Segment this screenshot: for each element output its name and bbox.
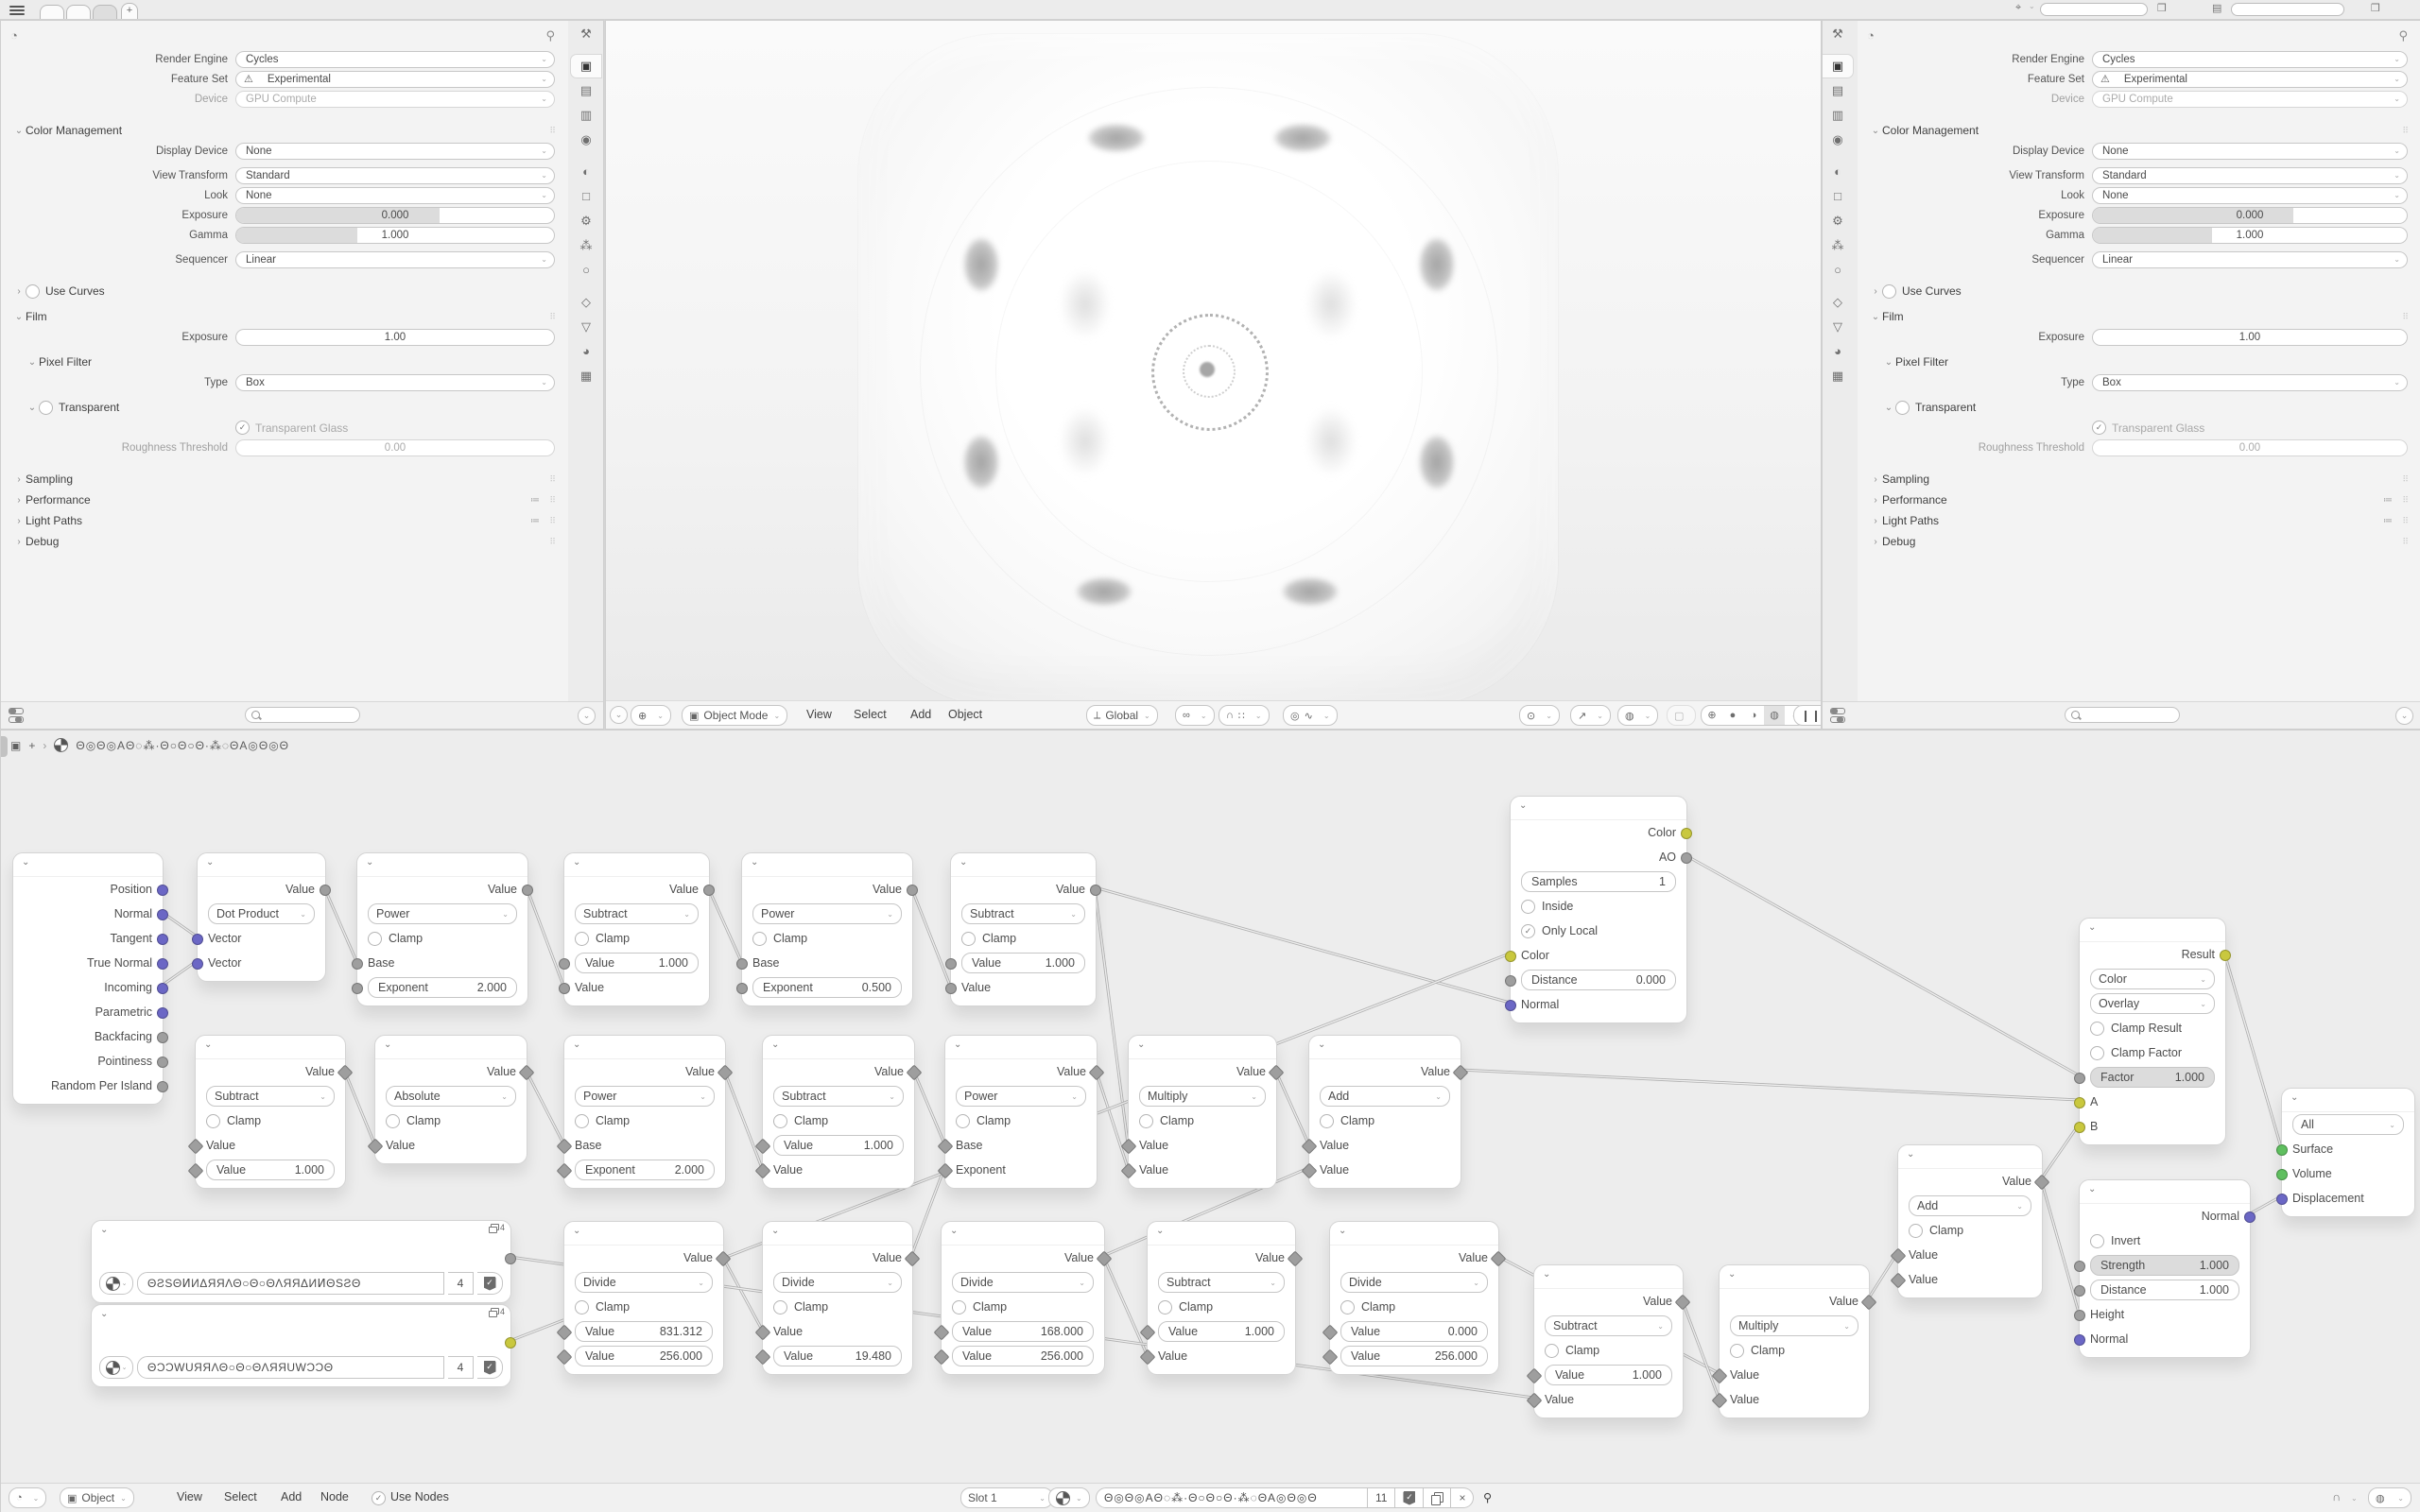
menu-add[interactable]: Add — [281, 1490, 302, 1503]
fake-user-button[interactable]: ✓ — [477, 1272, 503, 1295]
node-header[interactable]: ⌄ — [1898, 1145, 2042, 1169]
node-n8[interactable]: ⌄ResultColor⌄Overlay⌄Clamp ResultClamp F… — [2079, 918, 2226, 1145]
dropdown-display-device[interactable]: None⌄ — [235, 143, 555, 160]
output-socket[interactable] — [1090, 885, 1101, 896]
section-color-management[interactable]: ⌄Color Management⠿ — [1, 120, 564, 141]
shader-type-dropdown[interactable]: ▣ Object⌄ — [60, 1487, 134, 1508]
pin-icon[interactable]: ⚲ — [2398, 28, 2408, 43]
input-socket[interactable] — [945, 983, 957, 994]
node-n21[interactable]: ⌄ValueDivide⌄ClampValue168.000Value256.0… — [941, 1221, 1105, 1375]
input-socket[interactable] — [736, 983, 748, 994]
checkbox-row[interactable]: Clamp — [575, 1300, 630, 1314]
tab-render[interactable]: ▣ — [1823, 55, 1853, 77]
input-socket[interactable] — [945, 958, 957, 970]
view-layer-icon[interactable]: ▤ — [2212, 2, 2221, 14]
image-users-count[interactable]: 4 — [448, 1356, 474, 1379]
output-socket[interactable] — [157, 1057, 168, 1068]
input-socket[interactable] — [2074, 1310, 2085, 1321]
tab-object[interactable]: □ — [571, 185, 601, 208]
section-debug[interactable]: ›Debug⠿ — [1858, 531, 2417, 552]
use-nodes-checkbox[interactable]: ✓ — [372, 1491, 386, 1505]
options-chevron-button[interactable]: ⌄ — [578, 707, 596, 725]
dropdown-device[interactable]: GPU Compute⌄ — [2092, 91, 2408, 108]
output-socket[interactable] — [2220, 950, 2231, 961]
tab-scene[interactable]: ◉ — [1823, 129, 1853, 151]
value-field[interactable]: Value1.000 — [575, 953, 699, 973]
collapse-chevron-icon[interactable]: ⌄ — [2088, 922, 2096, 933]
checkbox[interactable] — [575, 1300, 589, 1314]
value-field[interactable]: Value256.000 — [952, 1346, 1094, 1366]
node-n7[interactable]: ⌄ColorAOSamples1Inside✓Only LocalColorDi… — [1510, 796, 1687, 1023]
checkbox-row[interactable]: Clamp — [773, 1300, 828, 1314]
menu-select[interactable]: Select — [224, 1490, 257, 1503]
collapse-chevron-icon[interactable]: ⌄ — [771, 1226, 779, 1236]
menu-object[interactable]: Object — [948, 708, 982, 721]
operation-dropdown[interactable]: All⌄ — [2292, 1114, 2404, 1135]
workspace-tab[interactable] — [66, 5, 91, 20]
node-header[interactable]: ⌄ — [1309, 1036, 1461, 1059]
output-socket[interactable] — [320, 885, 331, 896]
section-color-management[interactable]: ⌄Color Management⠿ — [1858, 120, 2417, 141]
value-field[interactable]: Distance0.000 — [1521, 970, 1676, 990]
checkbox[interactable] — [773, 1300, 787, 1314]
checkbox-row[interactable]: Clamp — [952, 1300, 1007, 1314]
browse-material-button[interactable]: ⌄ — [1048, 1487, 1090, 1508]
node-n23[interactable]: ⌄ValueDivide⌄ClampValue0.000Value256.000 — [1329, 1221, 1499, 1375]
section-transparent[interactable]: ⌄Transparent — [1, 397, 564, 418]
value-field[interactable]: Value1.000 — [1545, 1365, 1672, 1385]
checkbox[interactable] — [1882, 284, 1896, 299]
chevron-down-icon[interactable]: ⌄ — [2351, 1494, 2358, 1503]
value-field-gamma[interactable]: 1.000 — [235, 227, 555, 244]
checkbox[interactable] — [575, 1114, 589, 1128]
input-socket[interactable] — [2074, 1261, 2085, 1272]
browse-image-button[interactable]: ⌄ — [99, 1356, 133, 1379]
input-socket[interactable] — [559, 983, 570, 994]
node-n10[interactable]: ⌄ValueSubtract⌄ClampValueValue1.000 — [195, 1035, 346, 1189]
tab-scene[interactable]: ◉ — [571, 129, 601, 151]
browse-image-button[interactable]: ⌄ — [99, 1272, 133, 1295]
node-header[interactable]: ⌄ — [951, 853, 1096, 877]
value-field[interactable]: Strength1.000 — [2090, 1255, 2239, 1276]
node-header[interactable]: ⌄ — [2080, 1180, 2250, 1204]
shading-wireframe-icon[interactable]: ⊕ — [1702, 706, 1722, 725]
shading-rendered-icon[interactable]: ◍ — [1764, 706, 1785, 725]
menu-node[interactable]: Node — [320, 1490, 349, 1503]
node-header[interactable]: ⌄ — [375, 1036, 527, 1059]
operation-dropdown[interactable]: Power⌄ — [575, 1086, 715, 1107]
node-n3[interactable]: ⌄ValuePower⌄ClampBaseExponent2.000 — [356, 852, 528, 1006]
node-n25[interactable]: ⌄ValueMultiply⌄ClampValueValue — [1719, 1264, 1870, 1418]
operation-dropdown[interactable]: Subtract⌄ — [575, 903, 699, 924]
collapse-chevron-icon[interactable]: ⌄ — [959, 857, 967, 868]
operation-dropdown[interactable]: Subtract⌄ — [1545, 1315, 1672, 1336]
new-material-button[interactable] — [1424, 1487, 1451, 1508]
node-n14[interactable]: ⌄ValuePower⌄ClampBaseExponent — [944, 1035, 1098, 1189]
checkbox[interactable]: ✓ — [235, 421, 250, 435]
value-field[interactable]: Exponent2.000 — [368, 977, 517, 998]
value-field[interactable]: Samples1 — [1521, 871, 1676, 892]
dropdown-render-engine[interactable]: Cycles⌄ — [235, 51, 555, 68]
input-socket[interactable] — [2074, 1285, 2085, 1297]
tab-tool[interactable]: ⚒ — [1823, 23, 1853, 45]
output-socket[interactable] — [2244, 1211, 2256, 1223]
node-n18[interactable]: ⌄4⌄ΘƆƆWUЯЯΛΘ○Θ○ΘΛЯЯUWƆƆΘ4✓ — [91, 1304, 511, 1387]
section-film[interactable]: ⌄Film⠿ — [1, 306, 564, 327]
node-n22[interactable]: ⌄ValueSubtract⌄ClampValue1.000Value — [1147, 1221, 1296, 1375]
checkbox-row[interactable]: Clamp — [1909, 1224, 1963, 1238]
dropdown-view-transform[interactable]: Standard⌄ — [235, 167, 555, 184]
section-sampling[interactable]: ›Sampling⠿ — [1, 469, 564, 490]
pause-render-button[interactable]: ❙❙ — [1793, 705, 1822, 726]
dropdown-look[interactable]: None⌄ — [235, 187, 555, 204]
collapse-chevron-icon[interactable]: ⌄ — [2088, 1184, 2096, 1194]
material-name-field[interactable]: Θ◎Θ◎AΘ◌⁂·Θ○Θ○Θ·⁂◌ΘA◎Θ◎Θ — [1096, 1487, 1368, 1508]
node-n19[interactable]: ⌄ValueDivide⌄ClampValue831.312Value256.0… — [563, 1221, 724, 1375]
collapse-chevron-icon[interactable]: ⌄ — [1728, 1269, 1736, 1280]
new-scene-icon[interactable]: ❒ — [2157, 2, 2167, 14]
collapse-chevron-icon[interactable]: ⌄ — [206, 857, 214, 868]
tab-modifiers[interactable]: ⚙ — [571, 210, 601, 232]
collapse-chevron-icon[interactable]: ⌄ — [1543, 1269, 1550, 1280]
checkbox[interactable] — [26, 284, 40, 299]
orientation-dropdown[interactable]: ⟂Global⌄ — [1086, 705, 1158, 726]
checkbox-row[interactable]: Clamp — [1730, 1344, 1785, 1358]
tab-constraints[interactable]: ◇ — [571, 291, 601, 314]
node-header[interactable]: ⌄ — [1148, 1222, 1295, 1246]
tab-output[interactable]: ▤ — [1823, 79, 1853, 102]
snap-icon[interactable]: ∩ — [2332, 1490, 2341, 1503]
image-name-field[interactable]: ΘƧSΘͶИΔЯЯΛΘ○Θ○ΘΛЯЯΔИͶΘSƧΘ — [137, 1272, 444, 1295]
value-field[interactable]: Value1.000 — [1158, 1321, 1285, 1342]
tab-output[interactable]: ▤ — [571, 79, 601, 102]
value-field[interactable]: Value19.480 — [773, 1346, 902, 1366]
checkbox[interactable] — [952, 1300, 966, 1314]
collapse-chevron-icon[interactable]: ⌄ — [573, 1226, 580, 1236]
node-header[interactable]: ⌄ — [763, 1222, 912, 1246]
image-users-count[interactable]: 4 — [448, 1272, 474, 1295]
input-socket[interactable] — [2074, 1122, 2085, 1133]
input-socket[interactable] — [2074, 1334, 2085, 1346]
pin-icon[interactable]: ⚲ — [545, 28, 555, 43]
operation-dropdown[interactable]: Add⌄ — [1909, 1195, 2031, 1216]
collapse-chevron-icon[interactable]: ⌄ — [954, 1039, 961, 1050]
input-socket[interactable] — [1505, 975, 1516, 987]
filter-toggle-icon[interactable] — [9, 708, 26, 721]
output-socket[interactable] — [505, 1253, 516, 1264]
node-n20[interactable]: ⌄ValueDivide⌄ClampValueValue19.480 — [762, 1221, 913, 1375]
collapse-chevron-icon[interactable]: ⌄ — [1318, 1039, 1325, 1050]
value-field[interactable]: Value168.000 — [952, 1321, 1094, 1342]
fake-user-button[interactable]: ✓ — [1395, 1487, 1424, 1508]
checkbox[interactable] — [575, 932, 589, 946]
dropdown-sequencer[interactable]: Linear⌄ — [235, 251, 555, 268]
node-n16[interactable]: ⌄ValueAdd⌄ClampValueValue — [1308, 1035, 1461, 1189]
node-n2[interactable]: ⌄ValueDot Product⌄VectorVector — [197, 852, 326, 982]
input-socket[interactable] — [2074, 1097, 2085, 1108]
node-header[interactable]: ⌄4 — [92, 1221, 510, 1244]
operation-dropdown[interactable]: Divide⌄ — [773, 1272, 902, 1293]
collapse-chevron-icon[interactable]: ⌄ — [573, 857, 580, 868]
section-use-curves[interactable]: ›Use Curves — [1858, 281, 2417, 301]
checkbox-row[interactable]: Invert — [2090, 1234, 2140, 1248]
shader-node-editor[interactable]: ▣ + › Θ◎Θ◎AΘ◌⁂·Θ○Θ○Θ·⁂◌ΘA◎Θ◎Θ ⌄PositionN… — [0, 730, 2420, 1512]
node-n12[interactable]: ⌄ValuePower⌄ClampBaseExponent2.000 — [563, 1035, 726, 1189]
tab-physics[interactable]: ○ — [1823, 259, 1853, 282]
checkbox[interactable] — [2090, 1046, 2104, 1060]
operation-dropdown[interactable]: Subtract⌄ — [1158, 1272, 1285, 1293]
input-socket[interactable] — [1505, 951, 1516, 962]
node-header[interactable]: ⌄4 — [92, 1305, 510, 1328]
input-socket[interactable] — [352, 983, 363, 994]
node-header[interactable]: ⌄ — [945, 1036, 1097, 1059]
region-chevron-button[interactable]: ⌄ — [610, 706, 628, 724]
fake-user-button[interactable]: ✓ — [477, 1356, 503, 1379]
checkbox[interactable] — [1730, 1344, 1744, 1358]
section-transparent[interactable]: ⌄Transparent — [1858, 397, 2417, 418]
checkbox[interactable] — [1895, 401, 1910, 415]
value-field[interactable]: Exponent2.000 — [575, 1160, 715, 1180]
collapse-chevron-icon[interactable]: ⌄ — [1519, 800, 1527, 811]
node-n9[interactable]: ⌄All⌄SurfaceVolumeDisplacement — [2281, 1088, 2415, 1217]
checkbox-row[interactable]: Clamp — [773, 1114, 828, 1128]
checkbox-row[interactable]: Clamp — [206, 1114, 261, 1128]
input-socket[interactable] — [2276, 1194, 2288, 1205]
section-pixel-filter[interactable]: ⌄Pixel Filter — [1, 352, 564, 372]
input-socket[interactable] — [192, 958, 203, 970]
collapse-chevron-icon[interactable]: ⌄ — [384, 1039, 391, 1050]
dropdown-feature-set[interactable]: ⚠Experimental⌄ — [235, 71, 555, 88]
tab-material[interactable]: ◕ — [1823, 340, 1853, 363]
section-film[interactable]: ⌄Film⠿ — [1858, 306, 2417, 327]
dropdown-sequencer[interactable]: Linear⌄ — [2092, 251, 2408, 268]
checkbox[interactable] — [1909, 1224, 1923, 1238]
checkbox[interactable] — [773, 1114, 787, 1128]
checkbox[interactable] — [1139, 1114, 1153, 1128]
dropdown-feature-set[interactable]: ⚠Experimental⌄ — [2092, 71, 2408, 88]
input-socket[interactable] — [2074, 1073, 2085, 1084]
value-field-gamma[interactable]: 1.000 — [2092, 227, 2408, 244]
xray-toggle[interactable]: ▢ — [1667, 705, 1696, 726]
new-view-layer-icon[interactable]: ❒ — [2371, 2, 2380, 14]
value-field-roughness-threshold[interactable]: 0.00 — [235, 439, 555, 456]
node-header[interactable]: ⌄ — [1720, 1265, 1869, 1289]
operation-dropdown[interactable]: Subtract⌄ — [961, 903, 1085, 924]
tab-world[interactable]: ◐ — [1823, 161, 1853, 183]
proportional-edit-group[interactable]: ◎∿⌄ — [1283, 705, 1338, 726]
input-socket[interactable] — [559, 958, 570, 970]
tab-texture[interactable]: ▦ — [571, 365, 601, 387]
checkbox[interactable] — [1158, 1300, 1172, 1314]
output-socket[interactable] — [157, 983, 168, 994]
node-n15[interactable]: ⌄ValueMultiply⌄ClampValueValue — [1128, 1035, 1277, 1189]
collapse-chevron-icon[interactable]: ⌄ — [771, 1039, 779, 1050]
input-socket[interactable] — [352, 958, 363, 970]
checkbox-row[interactable]: Clamp — [961, 932, 1016, 946]
section-performance[interactable]: ›Performance≔⠿ — [1858, 490, 2417, 510]
node-n27[interactable]: ⌄NormalInvertStrength1.000Distance1.000H… — [2079, 1179, 2251, 1358]
tab-object-data[interactable]: ▽ — [1823, 316, 1853, 338]
workspace-tab-active[interactable] — [93, 5, 117, 20]
collapse-chevron-icon[interactable]: ⌄ — [1907, 1149, 1914, 1160]
tab-object-data[interactable]: ▽ — [571, 316, 601, 338]
input-socket[interactable] — [192, 934, 203, 945]
operation-dropdown[interactable]: Subtract⌄ — [206, 1086, 335, 1107]
node-header[interactable]: ⌄ — [198, 853, 325, 877]
input-socket[interactable] — [2276, 1144, 2288, 1156]
value-field[interactable]: Exponent0.500 — [752, 977, 902, 998]
editor-type-button[interactable]: ◔⌄ — [9, 1487, 46, 1508]
node-header[interactable]: ⌄ — [942, 1222, 1104, 1246]
tab-view-layer[interactable]: ▥ — [571, 104, 601, 127]
mode-dropdown[interactable]: ▣Object Mode⌄ — [682, 705, 787, 726]
checkbox-row[interactable]: ✓Transparent Glass — [235, 421, 348, 435]
tab-particles[interactable]: ⁂ — [571, 234, 601, 257]
view-layer-name-field[interactable] — [2231, 3, 2344, 16]
collapse-chevron-icon[interactable]: ⌄ — [751, 857, 758, 868]
operation-dropdown[interactable]: Color⌄ — [2090, 969, 2215, 989]
section-use-curves[interactable]: ›Use Curves — [1, 281, 564, 301]
checkbox[interactable] — [368, 932, 382, 946]
shading-material-preview-icon[interactable]: ◑ — [1743, 706, 1764, 725]
dropdown-look[interactable]: None⌄ — [2092, 187, 2408, 204]
value-field[interactable]: Value1.000 — [961, 953, 1085, 973]
value-field-exposure[interactable]: 0.000 — [2092, 207, 2408, 224]
output-socket[interactable] — [522, 885, 533, 896]
node-header[interactable]: ⌄ — [564, 853, 709, 877]
node-n24[interactable]: ⌄ValueSubtract⌄ClampValue1.000Value — [1533, 1264, 1684, 1418]
checkbox-row[interactable]: Clamp — [386, 1114, 441, 1128]
node-header[interactable]: ⌄ — [2282, 1089, 2414, 1112]
checkbox-row[interactable]: Clamp — [956, 1114, 1011, 1128]
search-input[interactable] — [2065, 707, 2180, 723]
tab-constraints[interactable]: ◇ — [1823, 291, 1853, 314]
operation-dropdown[interactable]: Power⌄ — [752, 903, 902, 924]
viewport-3d[interactable]: ⌄⊕⌄▣Object Mode⌄ViewSelectAddObject⟂Glob… — [605, 20, 1822, 730]
node-n6[interactable]: ⌄ValueSubtract⌄ClampValue1.000Value — [950, 852, 1097, 1006]
value-field[interactable]: Value256.000 — [1340, 1346, 1488, 1366]
checkbox[interactable] — [961, 932, 976, 946]
dropdown-view-transform[interactable]: Standard⌄ — [2092, 167, 2408, 184]
node-header[interactable]: ⌄ — [13, 853, 163, 877]
checkbox[interactable] — [2090, 1022, 2104, 1036]
collapse-chevron-icon[interactable]: ⌄ — [366, 857, 373, 868]
checkbox[interactable] — [1340, 1300, 1355, 1314]
output-socket[interactable] — [157, 909, 168, 920]
overlays-toggle[interactable]: ◍⌄ — [2368, 1487, 2411, 1508]
collapse-chevron-icon[interactable]: ⌄ — [1156, 1226, 1164, 1236]
checkbox-row[interactable]: Clamp — [1545, 1344, 1599, 1358]
collapse-chevron-icon[interactable]: ⌄ — [204, 1039, 212, 1050]
menu-view[interactable]: View — [806, 708, 832, 721]
tab-physics[interactable]: ○ — [571, 259, 601, 282]
value-field[interactable]: Factor1.000 — [2090, 1067, 2215, 1088]
checkbox[interactable] — [1320, 1114, 1334, 1128]
operation-dropdown[interactable]: Overlay⌄ — [2090, 993, 2215, 1014]
tab-particles[interactable]: ⁂ — [1823, 234, 1853, 257]
dropdown-render-engine[interactable]: Cycles⌄ — [2092, 51, 2408, 68]
section-pixel-filter[interactable]: ⌄Pixel Filter — [1858, 352, 2417, 372]
checkbox-row[interactable]: Clamp — [575, 1114, 630, 1128]
checkbox-row[interactable]: Clamp — [1139, 1114, 1194, 1128]
node-header[interactable]: ⌄ — [1511, 797, 1686, 820]
checkbox[interactable]: ✓ — [1521, 924, 1535, 938]
checkbox[interactable] — [1545, 1344, 1559, 1358]
add-workspace-tab-button[interactable]: + — [121, 3, 138, 20]
tab-texture[interactable]: ▦ — [1823, 365, 1853, 387]
output-socket[interactable] — [157, 885, 168, 896]
visibility-dropdown[interactable]: ⊙⌄ — [1519, 705, 1560, 726]
checkbox[interactable] — [39, 401, 53, 415]
filter-toggle-icon[interactable] — [1830, 708, 1847, 721]
workspace-tab[interactable] — [40, 5, 64, 20]
input-socket[interactable] — [1505, 1000, 1516, 1011]
value-field-roughness-threshold[interactable]: 0.00 — [2092, 439, 2408, 456]
dropdown-type[interactable]: Box⌄ — [2092, 374, 2408, 391]
section-sampling[interactable]: ›Sampling⠿ — [1858, 469, 2417, 490]
tab-material[interactable]: ◕ — [571, 340, 601, 363]
checkbox-row[interactable]: Clamp — [1158, 1300, 1213, 1314]
value-field[interactable]: Value1.000 — [206, 1160, 335, 1180]
node-n13[interactable]: ⌄ValueSubtract⌄ClampValue1.000Value — [762, 1035, 915, 1189]
chevron-down-icon[interactable]: ⌄ — [2029, 2, 2035, 10]
checkbox[interactable]: ✓ — [2092, 421, 2106, 435]
node-header[interactable]: ⌄ — [196, 1036, 345, 1059]
image-name-field[interactable]: ΘƆƆWUЯЯΛΘ○Θ○ΘΛЯЯUWƆƆΘ — [137, 1356, 444, 1379]
checkbox-row[interactable]: Inside — [1521, 900, 1573, 914]
operation-dropdown[interactable]: Absolute⌄ — [386, 1086, 516, 1107]
operation-dropdown[interactable]: Dot Product⌄ — [208, 903, 315, 924]
value-field[interactable]: Distance1.000 — [2090, 1280, 2239, 1300]
checkbox-row[interactable]: Clamp Result — [2090, 1022, 2182, 1036]
dropdown-display-device[interactable]: None⌄ — [2092, 143, 2408, 160]
output-socket[interactable] — [157, 1007, 168, 1019]
scrollbar[interactable] — [1, 736, 8, 757]
section-light-paths[interactable]: ›Light Paths≔⠿ — [1, 510, 564, 531]
node-n4[interactable]: ⌄ValueSubtract⌄ClampValue1.000Value — [563, 852, 710, 1006]
app-menu-icon[interactable] — [9, 4, 25, 15]
tab-object[interactable]: □ — [1823, 185, 1853, 208]
collapse-chevron-icon[interactable]: ⌄ — [950, 1226, 958, 1236]
checkbox[interactable] — [2090, 1234, 2104, 1248]
checkbox-row[interactable]: Clamp Factor — [2090, 1046, 2182, 1060]
collapse-chevron-icon[interactable]: ⌄ — [573, 1039, 580, 1050]
collapse-chevron-icon[interactable]: ⌄ — [1137, 1039, 1145, 1050]
checkbox[interactable] — [206, 1114, 220, 1128]
collapse-chevron-icon[interactable]: ⌄ — [1339, 1226, 1346, 1236]
output-socket[interactable] — [157, 1081, 168, 1092]
overlays-dropdown[interactable]: ◍⌄ — [1617, 705, 1658, 726]
slot-dropdown[interactable]: Slot 1⌄ — [960, 1487, 1053, 1508]
node-n5[interactable]: ⌄ValuePower⌄ClampBaseExponent0.500 — [741, 852, 913, 1006]
tab-modifiers[interactable]: ⚙ — [1823, 210, 1853, 232]
menu-view[interactable]: View — [177, 1490, 202, 1503]
snap-toggle-group[interactable]: ∩∷⌄ — [1219, 705, 1270, 726]
node-header[interactable]: ⌄ — [2080, 919, 2225, 942]
section-performance[interactable]: ›Performance≔⠿ — [1, 490, 564, 510]
collapse-chevron-icon[interactable]: ⌄ — [100, 1309, 108, 1319]
checkbox-row[interactable]: ✓Only Local — [1521, 924, 1598, 938]
operation-dropdown[interactable]: Divide⌄ — [952, 1272, 1094, 1293]
shading-mode-group[interactable]: ⊕●◑◍⌄ — [1701, 705, 1806, 726]
operation-dropdown[interactable]: Power⌄ — [956, 1086, 1086, 1107]
checkbox-row[interactable]: Clamp — [1340, 1300, 1395, 1314]
checkbox-row[interactable]: ✓Transparent Glass — [2092, 421, 2204, 435]
output-socket[interactable] — [907, 885, 918, 896]
node-header[interactable]: ⌄ — [1129, 1036, 1276, 1059]
output-socket[interactable] — [1681, 852, 1692, 864]
shading-solid-icon[interactable]: ● — [1722, 706, 1743, 725]
